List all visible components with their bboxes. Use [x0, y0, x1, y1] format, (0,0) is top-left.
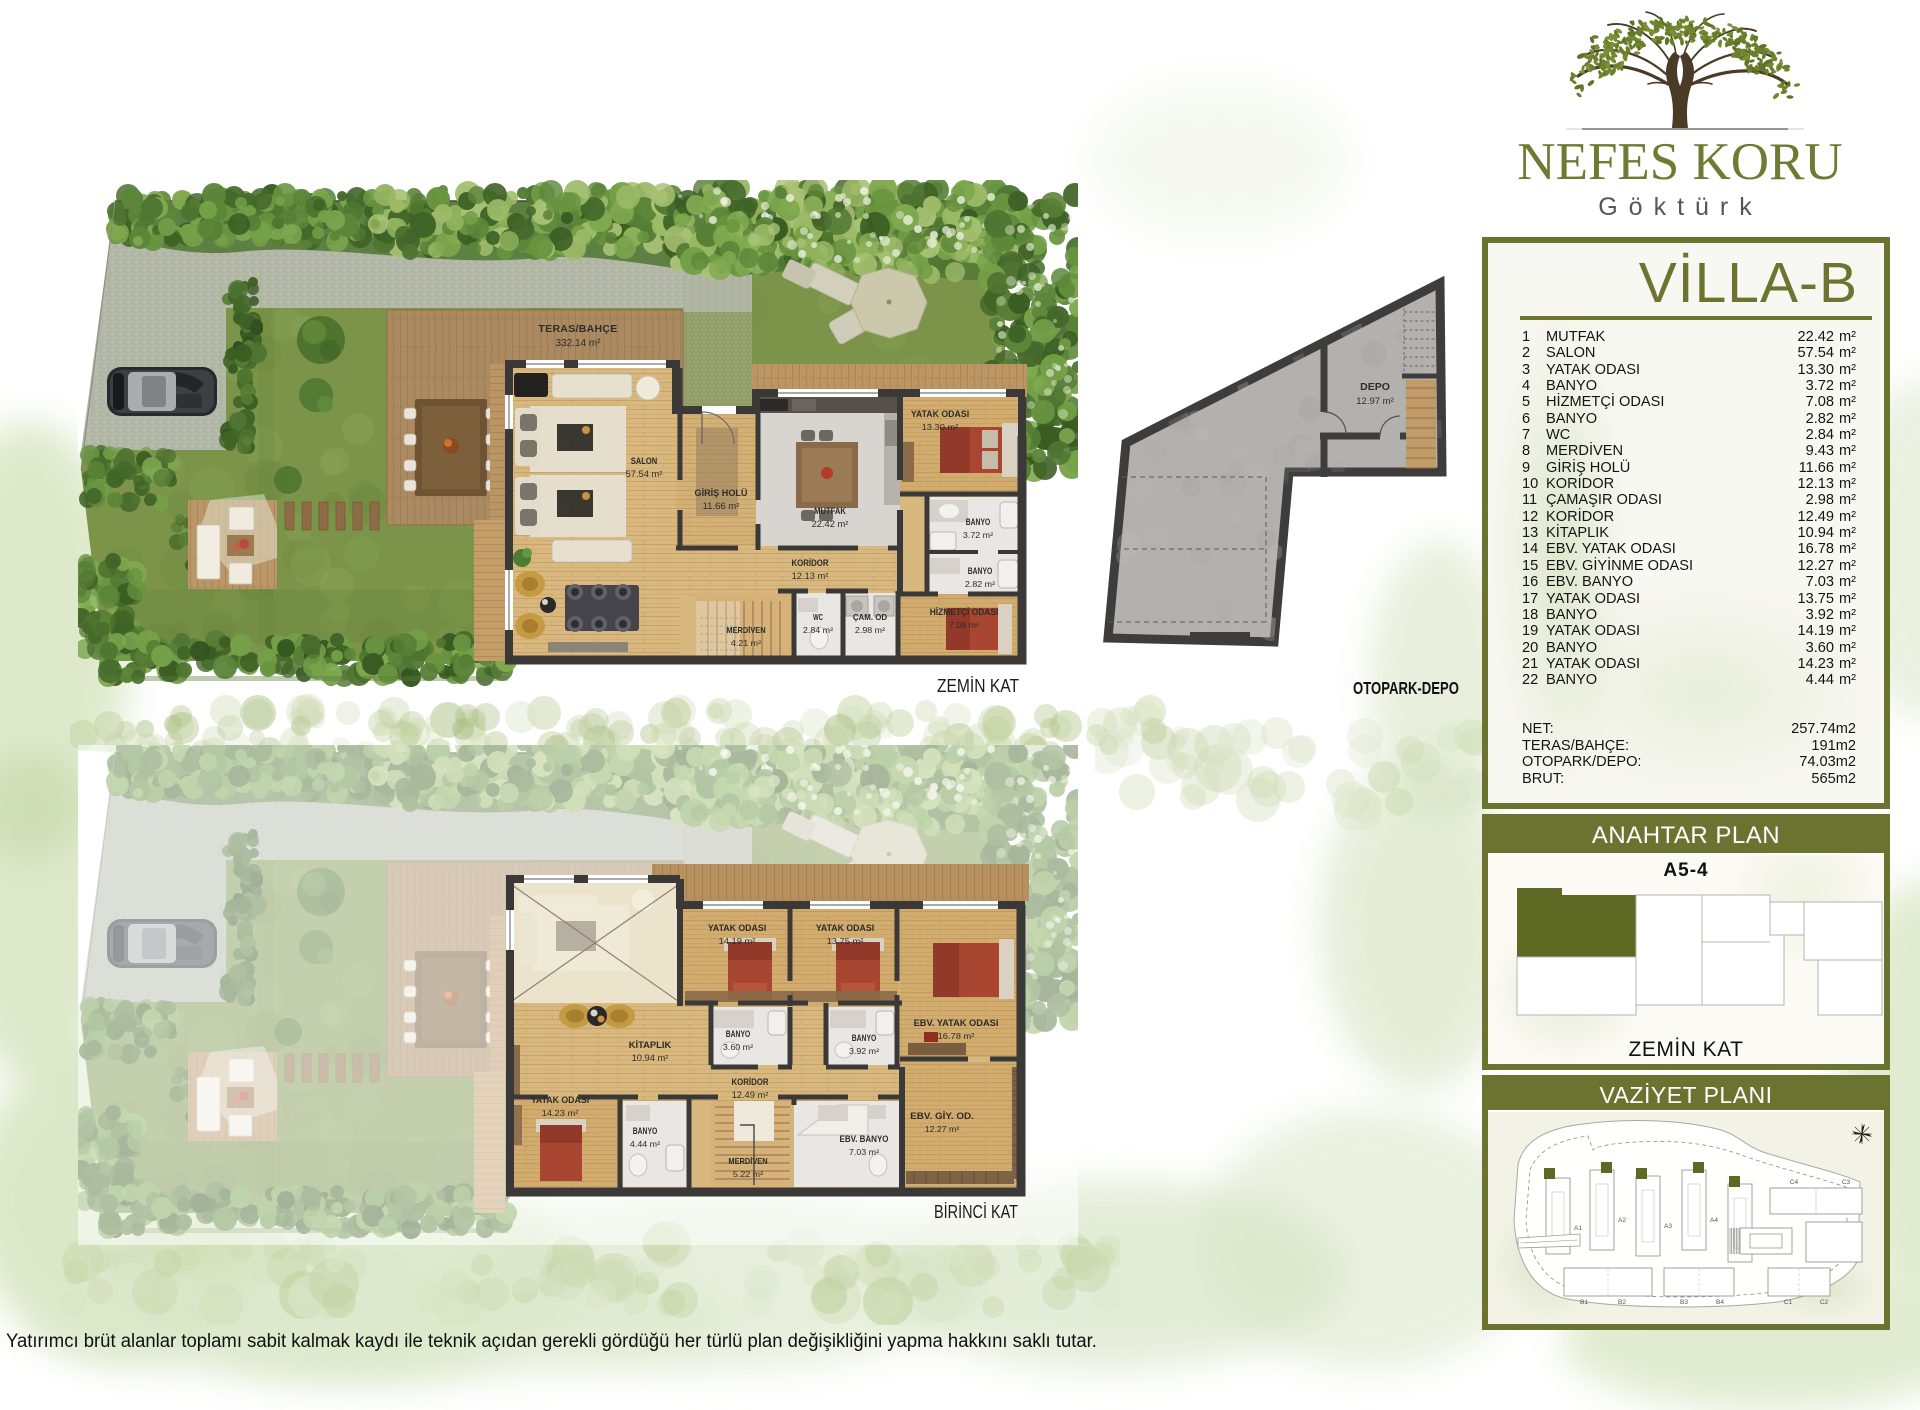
- svg-text:YATAK ODASI: YATAK ODASI: [531, 1095, 589, 1105]
- svg-text:2.84 m²: 2.84 m²: [803, 626, 833, 635]
- svg-text:EBV. BANYO: EBV. BANYO: [840, 1134, 889, 1144]
- svg-text:BANYO: BANYO: [968, 566, 993, 576]
- svg-text:WC: WC: [813, 612, 823, 622]
- svg-text:7.03 m²: 7.03 m²: [849, 1148, 879, 1157]
- svg-text:ÇAM. OD: ÇAM. OD: [853, 612, 887, 622]
- svg-text:2.82 m²: 2.82 m²: [965, 580, 995, 589]
- svg-text:SALON: SALON: [631, 456, 658, 467]
- svg-text:12.97 m²: 12.97 m²: [1356, 396, 1394, 407]
- svg-text:4.21 m²: 4.21 m²: [731, 639, 761, 648]
- svg-text:14.19 m²: 14.19 m²: [719, 936, 756, 946]
- svg-text:TERAS/BAHÇE: TERAS/BAHÇE: [538, 323, 617, 335]
- svg-text:3.60 m²: 3.60 m²: [723, 1043, 753, 1052]
- svg-text:MERDİVEN: MERDİVEN: [726, 625, 765, 635]
- svg-text:KORİDOR: KORİDOR: [731, 1077, 768, 1088]
- svg-text:BANYO: BANYO: [966, 517, 991, 527]
- svg-text:C4: C4: [1790, 1179, 1799, 1186]
- svg-text:DEPO: DEPO: [1360, 381, 1390, 393]
- svg-text:2.98 m²: 2.98 m²: [855, 626, 885, 635]
- svg-text:12.27 m²: 12.27 m²: [925, 1125, 960, 1134]
- svg-text:13.30 m²: 13.30 m²: [922, 422, 959, 432]
- svg-text:BİRİNCİ KAT: BİRİNCİ KAT: [934, 1202, 1018, 1222]
- svg-text:12.13 m²: 12.13 m²: [792, 571, 829, 581]
- svg-text:14.23 m²: 14.23 m²: [542, 1108, 579, 1118]
- svg-text:YATAK ODASI: YATAK ODASI: [911, 409, 969, 419]
- svg-text:A1: A1: [1574, 1225, 1582, 1232]
- svg-text:B1: B1: [1580, 1299, 1588, 1306]
- svg-text:5.22 m²: 5.22 m²: [733, 1170, 763, 1179]
- svg-text:GİRİŞ HOLÜ: GİRİŞ HOLÜ: [695, 488, 748, 499]
- svg-text:BANYO: BANYO: [852, 1033, 877, 1043]
- svg-text:3.72 m²: 3.72 m²: [963, 531, 993, 540]
- svg-text:YATAK ODASI: YATAK ODASI: [816, 923, 874, 933]
- svg-text:C3: C3: [1842, 1179, 1851, 1186]
- svg-text:MUTFAK: MUTFAK: [814, 506, 846, 517]
- svg-text:B3: B3: [1680, 1299, 1688, 1306]
- svg-text:332.14 m²: 332.14 m²: [555, 338, 601, 349]
- svg-text:BANYO: BANYO: [633, 1126, 658, 1136]
- svg-text:57.54 m²: 57.54 m²: [626, 469, 663, 479]
- svg-text:HİZMETÇİ ODASI: HİZMETÇİ ODASI: [930, 607, 999, 617]
- svg-text:BANYO: BANYO: [726, 1029, 751, 1039]
- svg-text:16.78 m²: 16.78 m²: [938, 1031, 975, 1041]
- svg-text:EBV. YATAK ODASI: EBV. YATAK ODASI: [914, 1018, 999, 1028]
- svg-text:A4: A4: [1710, 1217, 1718, 1224]
- svg-text:22.42 m²: 22.42 m²: [812, 519, 849, 529]
- svg-text:7.08 m²: 7.08 m²: [949, 621, 979, 630]
- svg-text:YATAK ODASI: YATAK ODASI: [708, 923, 766, 933]
- svg-text:ZEMİN KAT: ZEMİN KAT: [937, 676, 1019, 696]
- svg-text:KORİDOR: KORİDOR: [791, 558, 828, 569]
- svg-text:C1: C1: [1784, 1299, 1793, 1306]
- svg-text:KİTAPLIK: KİTAPLIK: [629, 1040, 671, 1051]
- svg-text:11.66 m²: 11.66 m²: [703, 501, 740, 511]
- svg-text:B2: B2: [1618, 1299, 1626, 1306]
- svg-text:A3: A3: [1664, 1223, 1672, 1230]
- svg-text:EBV. GİY. OD.: EBV. GİY. OD.: [910, 1111, 974, 1121]
- svg-text:12.49 m²: 12.49 m²: [732, 1090, 769, 1100]
- svg-text:3.92 m²: 3.92 m²: [849, 1047, 879, 1056]
- svg-text:OTOPARK-DEPO: OTOPARK-DEPO: [1353, 678, 1459, 698]
- svg-text:10.94 m²: 10.94 m²: [632, 1053, 669, 1063]
- svg-text:B4: B4: [1716, 1299, 1724, 1306]
- svg-text:MERDİVEN: MERDİVEN: [728, 1156, 767, 1166]
- svg-text:4.44 m²: 4.44 m²: [630, 1140, 660, 1149]
- svg-text:C2: C2: [1820, 1299, 1829, 1306]
- svg-text:A2: A2: [1618, 1217, 1626, 1224]
- svg-text:13.75 m²: 13.75 m²: [827, 936, 864, 946]
